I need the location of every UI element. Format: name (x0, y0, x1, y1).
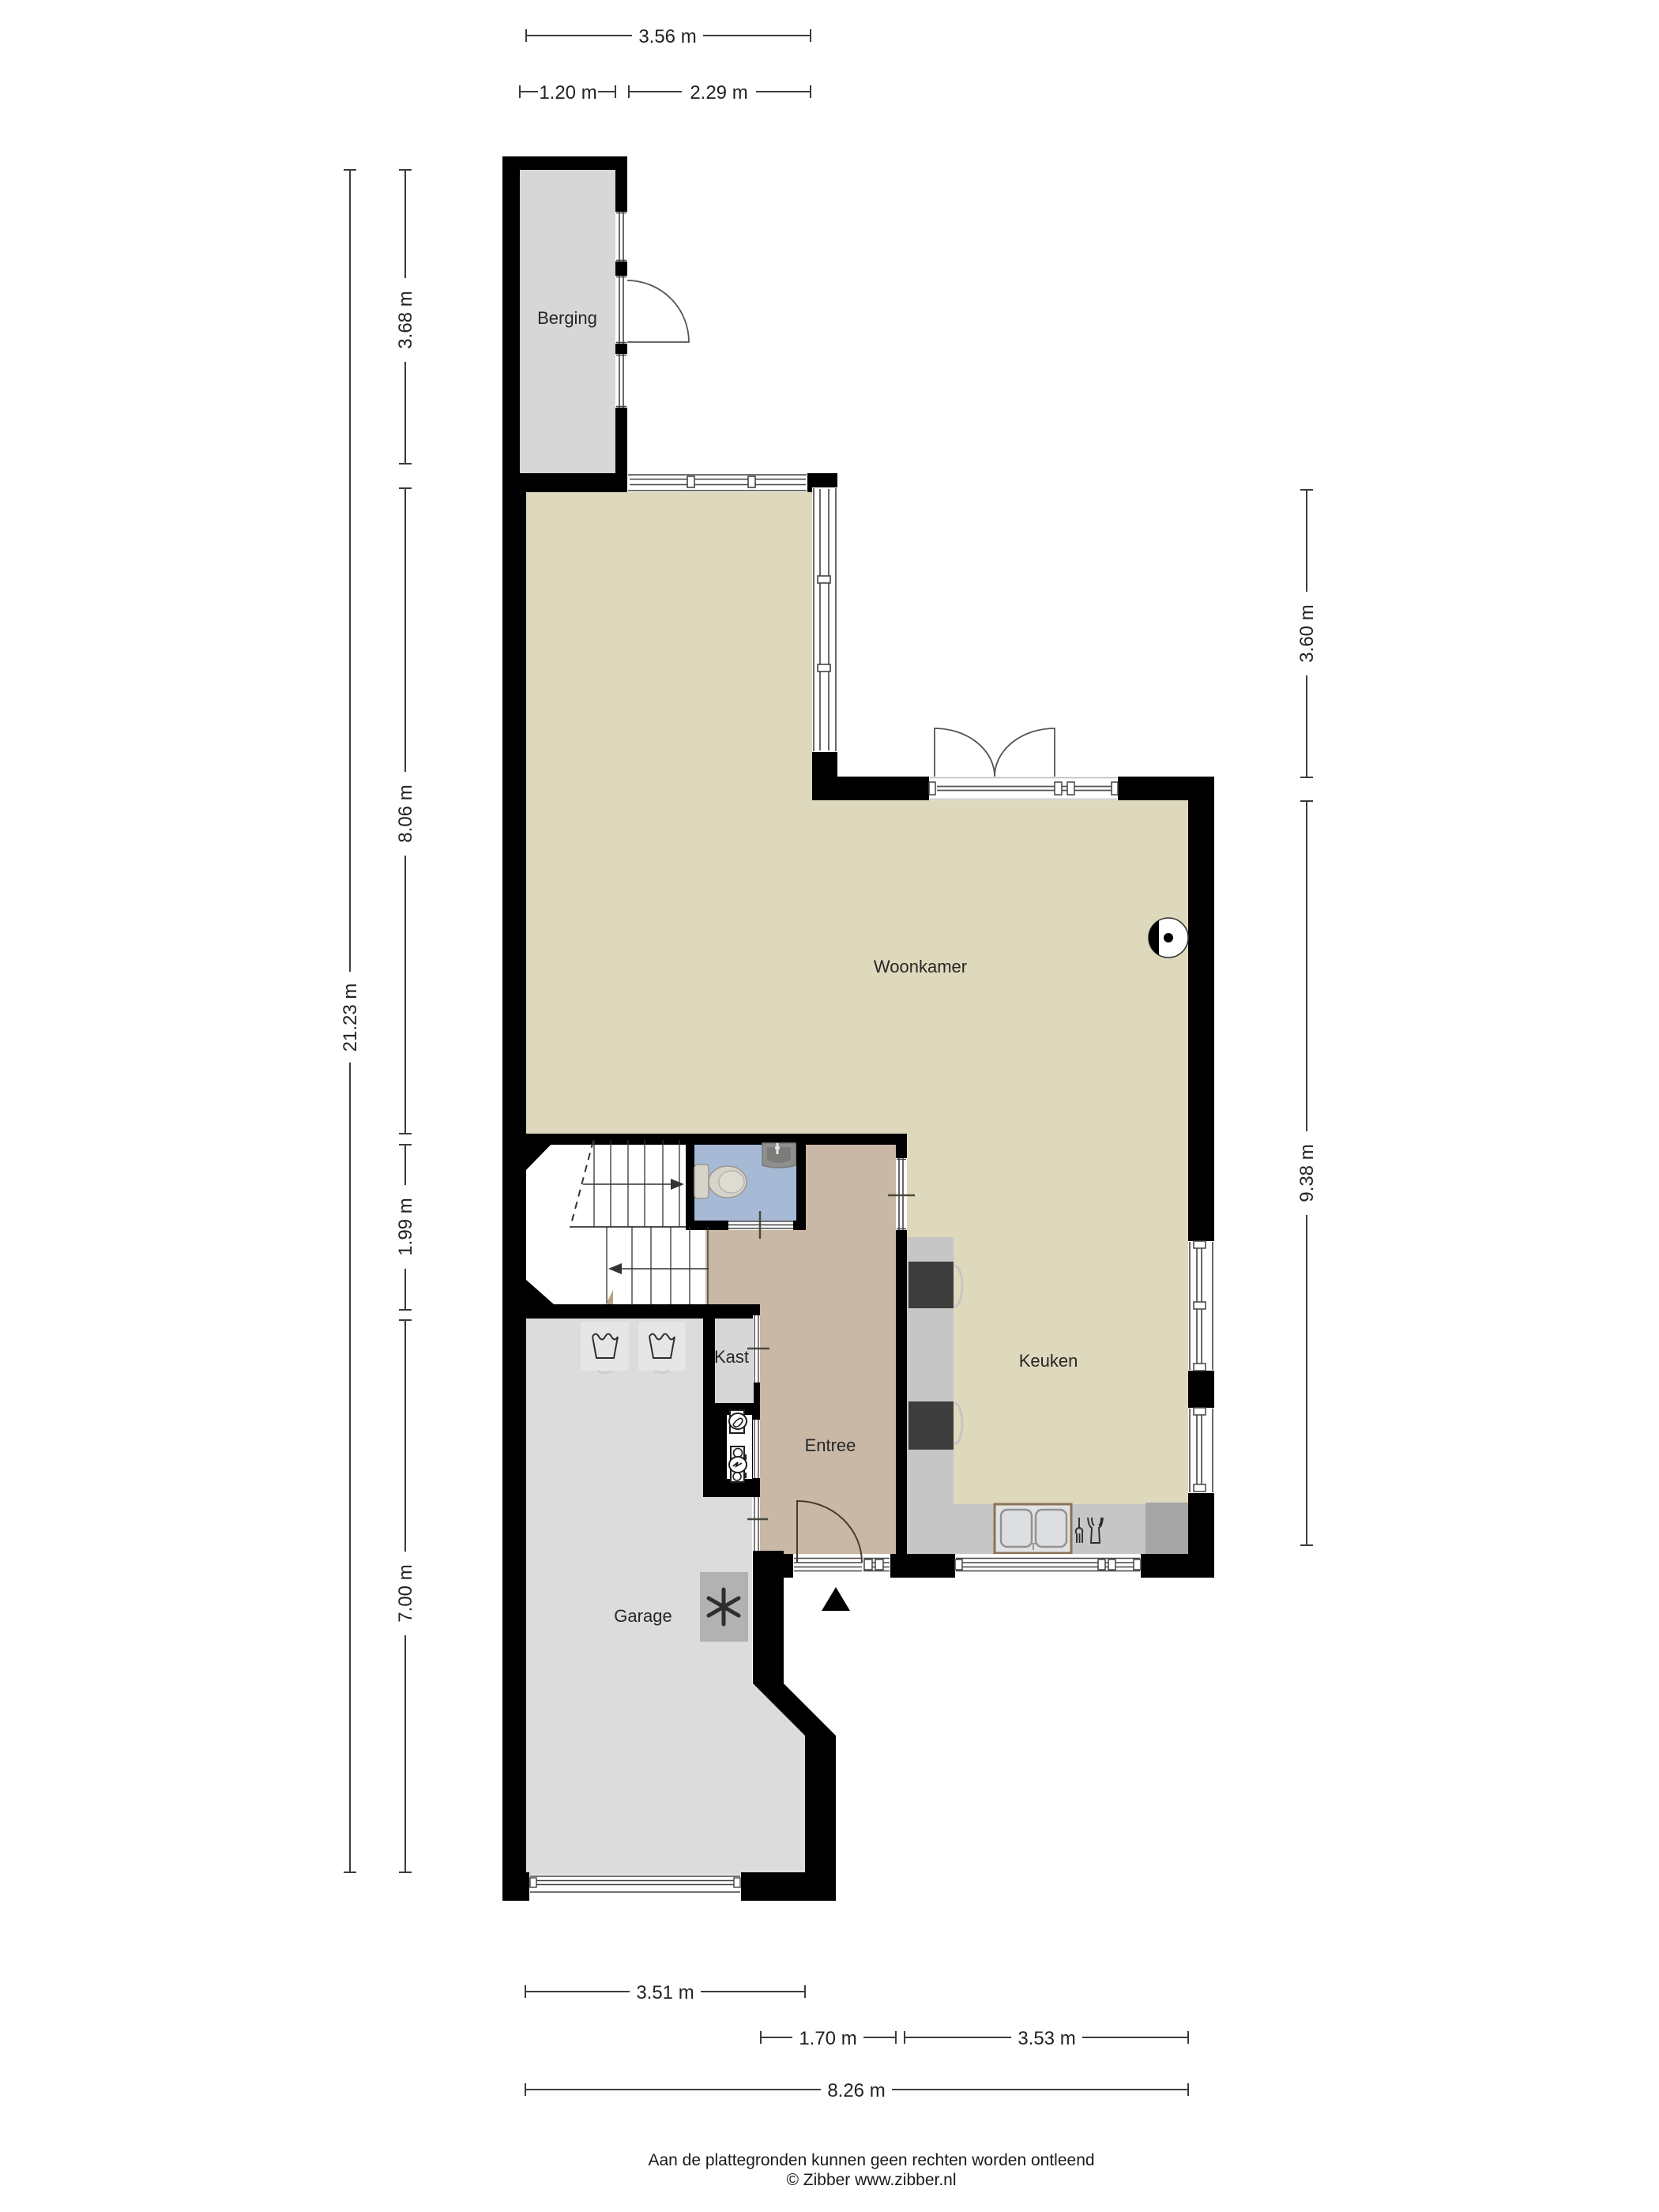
svg-text:2.29 m: 2.29 m (690, 82, 747, 103)
svg-text:8.06 m: 8.06 m (395, 784, 416, 842)
svg-text:1.99 m: 1.99 m (395, 1198, 416, 1255)
svg-text:3.68 m: 3.68 m (395, 291, 416, 348)
svg-text:8.26 m: 8.26 m (827, 2080, 885, 2101)
svg-text:Keuken: Keuken (1019, 1351, 1078, 1371)
svg-text:Woonkamer: Woonkamer (874, 957, 967, 976)
svg-text:Garage: Garage (614, 1606, 671, 1626)
svg-text:9.38 m: 9.38 m (1296, 1144, 1318, 1202)
svg-text:Kast: Kast (714, 1347, 749, 1367)
svg-text:3.53 m: 3.53 m (1018, 2028, 1075, 2049)
svg-text:21.23 m: 21.23 m (340, 984, 361, 1052)
svg-text:Aan de plattegronden kunnen ge: Aan de plattegronden kunnen geen rechten… (648, 2151, 1094, 2169)
svg-text:Berging: Berging (537, 308, 597, 328)
svg-text:Entree: Entree (805, 1435, 856, 1455)
svg-text:7.00 m: 7.00 m (395, 1564, 416, 1622)
svg-text:1.20 m: 1.20 m (539, 82, 596, 103)
svg-text:© Zibber www.zibber.nl: © Zibber www.zibber.nl (786, 2171, 956, 2189)
svg-text:3.51 m: 3.51 m (636, 1982, 694, 2003)
svg-text:3.56 m: 3.56 m (638, 26, 696, 47)
svg-text:1.70 m: 1.70 m (799, 2028, 856, 2049)
svg-text:3.60 m: 3.60 m (1296, 604, 1318, 662)
